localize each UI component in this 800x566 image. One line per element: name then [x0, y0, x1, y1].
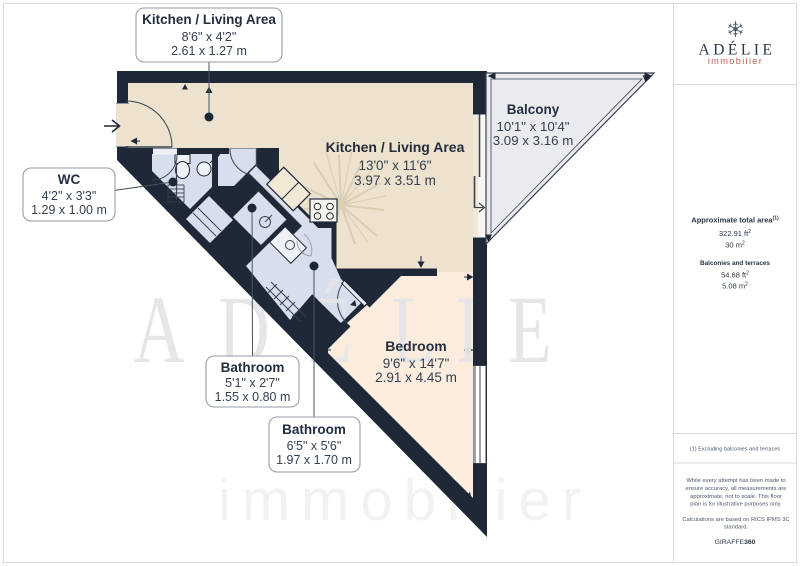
svg-text:4'2" x 3'3": 4'2" x 3'3" — [42, 189, 97, 203]
svg-text:plan is for illustrative purpo: plan is for illustrative purposes only. — [690, 502, 782, 508]
svg-text:While every attempt has been m: While every attempt has been made to — [686, 478, 785, 484]
svg-text:approximate, not to scale. Thi: approximate, not to scale. This floor — [690, 494, 782, 500]
svg-text:1.55 x 0.80 m: 1.55 x 0.80 m — [215, 390, 291, 404]
svg-text:6'5" x 5'6": 6'5" x 5'6" — [287, 439, 342, 453]
svg-text:8'6" x 4'2": 8'6" x 4'2" — [182, 30, 237, 44]
svg-text:2.61 x 1.27 m: 2.61 x 1.27 m — [171, 44, 247, 58]
svg-text:GIRAFFE360: GIRAFFE360 — [715, 539, 756, 546]
svg-text:54.68 ft2: 54.68 ft2 — [721, 271, 749, 280]
svg-text:Bathroom: Bathroom — [282, 422, 346, 437]
svg-text:13'0" x 11'6": 13'0" x 11'6" — [358, 158, 431, 173]
svg-text:3.09 x 3.16 m: 3.09 x 3.16 m — [493, 133, 574, 148]
svg-text:1.97 x 1.70 m: 1.97 x 1.70 m — [276, 453, 352, 467]
svg-text:Kitchen / Living Area: Kitchen / Living Area — [326, 139, 465, 155]
svg-text:E: E — [508, 278, 551, 384]
svg-text:ensure accuracy, all measureme: ensure accuracy, all measurements are — [685, 486, 786, 492]
svg-text:Balcony: Balcony — [507, 102, 560, 117]
svg-text:5'1" x 2'7": 5'1" x 2'7" — [225, 376, 280, 390]
svg-text:immobilier: immobilier — [218, 468, 592, 533]
svg-text:É: É — [308, 278, 351, 384]
svg-text:3.97 x 3.51 m: 3.97 x 3.51 m — [354, 173, 436, 188]
svg-text:10'1" x 10'4": 10'1" x 10'4" — [497, 119, 570, 134]
svg-text:Bathroom: Bathroom — [221, 360, 285, 375]
svg-text:immobilier: immobilier — [708, 56, 763, 66]
svg-text:2.91 x 4.45 m: 2.91 x 4.45 m — [375, 370, 457, 385]
svg-text:Approximate total area(1): Approximate total area(1) — [691, 216, 779, 225]
svg-text:standard.: standard. — [724, 525, 749, 531]
svg-text:Kitchen / Living Area: Kitchen / Living Area — [142, 12, 276, 27]
svg-text:Bedroom: Bedroom — [385, 338, 446, 354]
svg-text:322.91 ft2: 322.91 ft2 — [719, 229, 751, 238]
svg-text:9'6" x 14'7": 9'6" x 14'7" — [383, 356, 450, 371]
svg-text:WC: WC — [58, 172, 81, 187]
svg-text:Balconies and terraces: Balconies and terraces — [700, 260, 770, 267]
svg-text:1.29 x 1.00 m: 1.29 x 1.00 m — [31, 203, 107, 217]
svg-text:I: I — [456, 278, 480, 384]
svg-text:(1) Excluding balconies and te: (1) Excluding balconies and terraces — [690, 447, 781, 453]
svg-text:A: A — [133, 278, 184, 384]
svg-text:5.08 m2: 5.08 m2 — [722, 282, 748, 291]
svg-text:Calculations are based on RICS: Calculations are based on RICS IPMS 3C — [682, 517, 789, 523]
